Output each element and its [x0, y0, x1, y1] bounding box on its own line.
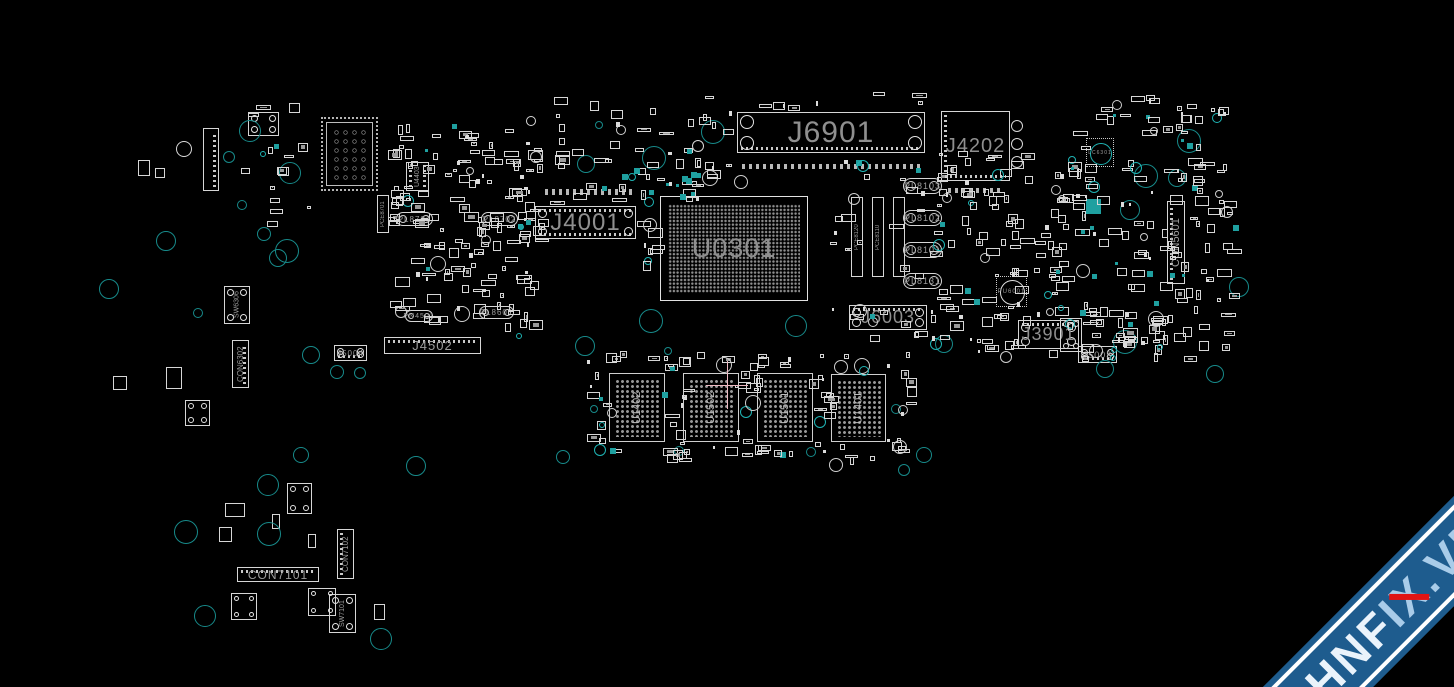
smd-part — [610, 141, 620, 149]
smd-part — [1085, 195, 1087, 198]
smd-part — [1217, 298, 1221, 302]
smd-part — [405, 149, 412, 159]
smd-part — [917, 209, 925, 212]
smd-part — [400, 136, 414, 141]
smd-part — [823, 450, 826, 453]
smd-part — [1131, 96, 1145, 102]
smd-part — [1015, 286, 1029, 294]
smd-part — [602, 186, 607, 191]
smd-part — [1085, 164, 1097, 173]
smd-part — [1217, 269, 1232, 277]
smd-part — [590, 101, 599, 111]
component-sw6306[interactable]: SW6306 — [224, 286, 250, 324]
smd-part — [1186, 288, 1193, 298]
smd-part — [982, 297, 997, 303]
smd-part — [948, 240, 955, 248]
smd-part — [681, 403, 683, 408]
smd-part — [680, 442, 685, 445]
smd-part — [1092, 333, 1101, 338]
smd-part — [512, 189, 527, 196]
smd-part — [416, 272, 420, 277]
smd-part — [1052, 292, 1058, 295]
smd-part — [702, 170, 718, 186]
smd-part — [1082, 344, 1094, 353]
smd-part — [470, 150, 480, 154]
smd-part — [1196, 290, 1201, 300]
component-lc6301[interactable]: LC6301 — [1086, 138, 1114, 167]
component-pce8120[interactable]: PCE8120 — [851, 197, 863, 277]
component-chip — [203, 128, 219, 191]
component-label: U1402 — [610, 374, 664, 441]
smd-part — [615, 449, 622, 453]
smd-part — [965, 158, 971, 166]
smd-part — [586, 183, 597, 190]
mount-hole — [692, 140, 704, 152]
smd-part — [1036, 253, 1046, 258]
via-hole — [354, 367, 366, 379]
component-j4502[interactable]: J4502 — [384, 337, 481, 354]
smd-part — [1147, 221, 1154, 229]
smd-part — [1149, 325, 1160, 334]
smd-part — [848, 193, 860, 205]
smd-part — [940, 222, 945, 227]
smd-part — [688, 119, 694, 127]
smd-part — [970, 202, 977, 210]
smd-part — [1187, 104, 1197, 109]
smd-part — [789, 451, 793, 457]
smd-part — [643, 261, 651, 271]
smd-part — [520, 231, 531, 237]
smd-part — [939, 153, 943, 156]
smd-part — [505, 196, 514, 199]
smd-part — [471, 142, 477, 146]
smd-part — [932, 336, 935, 341]
smd-part — [950, 285, 963, 294]
via-hole — [898, 464, 910, 476]
smd-part — [900, 178, 906, 181]
smd-part — [464, 212, 479, 222]
smd-part — [497, 302, 501, 310]
smd-part — [1109, 310, 1124, 317]
smd-part — [1017, 302, 1020, 307]
smd-part — [901, 321, 911, 328]
smd-part — [1001, 239, 1006, 246]
smd-part — [906, 402, 917, 405]
smd-part — [742, 453, 753, 457]
smd-part — [962, 216, 969, 226]
smd-part — [832, 308, 834, 311]
smd-part — [1199, 324, 1210, 330]
smd-part — [505, 257, 518, 262]
smd-part — [870, 456, 875, 461]
component-pl8102[interactable]: PL8102 — [903, 210, 942, 226]
via-hole — [595, 121, 603, 129]
smd-part — [1020, 238, 1035, 244]
smd-part — [1071, 167, 1074, 170]
smd-part — [918, 101, 923, 105]
smd-part — [1062, 276, 1075, 282]
smd-part — [970, 338, 972, 341]
smd-part — [1113, 114, 1116, 117]
smd-part — [683, 389, 695, 392]
smd-part — [307, 206, 311, 209]
smd-part — [426, 277, 428, 281]
component-chip — [374, 604, 385, 620]
smd-part — [513, 159, 521, 167]
smd-part — [703, 114, 707, 121]
component-chip — [155, 168, 165, 178]
smd-part — [1068, 322, 1073, 330]
smd-part — [758, 354, 767, 359]
smd-part — [476, 179, 480, 184]
component-u1402[interactable]: U1402 — [609, 373, 665, 442]
smd-part — [820, 354, 824, 358]
smd-part — [993, 192, 1005, 197]
smd-part — [399, 145, 404, 149]
smd-part — [840, 444, 845, 450]
smd-part — [986, 158, 995, 161]
smd-part — [1061, 174, 1064, 179]
smd-part — [479, 222, 490, 230]
component-u1502[interactable]: U1502 — [683, 373, 739, 442]
smd-part — [1118, 338, 1120, 342]
smd-part — [857, 160, 869, 172]
smd-part — [1149, 257, 1151, 260]
smd-part — [298, 143, 308, 152]
smd-part — [1076, 264, 1090, 278]
smd-part — [809, 379, 819, 389]
via-hole — [293, 447, 309, 463]
smd-part — [1207, 279, 1209, 282]
smd-part — [916, 168, 921, 173]
smd-part — [525, 271, 528, 274]
smd-part — [864, 174, 870, 180]
smd-part — [1187, 143, 1193, 149]
smd-part — [635, 148, 644, 152]
smd-part — [474, 249, 484, 255]
via-hole — [237, 200, 247, 210]
smd-part — [1138, 250, 1147, 255]
smd-part — [453, 169, 457, 172]
smd-part — [491, 218, 499, 228]
smd-part — [485, 157, 495, 165]
smd-part — [528, 190, 530, 194]
component-chip — [166, 367, 182, 389]
smd-part — [391, 202, 399, 209]
smd-part — [1082, 211, 1086, 221]
smd-part — [1084, 302, 1088, 310]
smd-part — [1048, 241, 1054, 250]
smd-part — [974, 299, 980, 305]
smd-part — [756, 378, 763, 387]
smd-part — [270, 209, 283, 214]
smd-part — [1012, 231, 1019, 240]
component-u0301[interactable]: U0301 — [660, 196, 808, 301]
smd-part — [452, 124, 457, 129]
via-hole — [785, 315, 807, 337]
smd-part — [429, 214, 439, 221]
smd-part — [432, 134, 441, 138]
smd-part — [835, 216, 843, 222]
smd-part — [824, 412, 836, 419]
smd-part — [612, 198, 627, 202]
smd-part — [1181, 131, 1188, 134]
smd-part — [518, 212, 527, 220]
smd-part — [1154, 301, 1159, 306]
component-chip — [287, 483, 312, 514]
smd-part — [940, 304, 954, 310]
smd-part — [616, 122, 620, 127]
smd-part — [1207, 224, 1215, 233]
smd-part — [520, 319, 527, 328]
smd-part — [284, 155, 294, 158]
smd-part — [526, 169, 534, 172]
smd-part — [423, 165, 435, 174]
component-label: PCE8110 — [873, 198, 883, 276]
smd-part — [987, 345, 995, 350]
smd-part — [1049, 350, 1058, 358]
smd-part — [595, 372, 599, 380]
smd-part — [1037, 312, 1040, 317]
component-chip — [113, 376, 127, 390]
smd-part — [463, 268, 471, 277]
via-hole — [330, 365, 344, 379]
smd-part — [1176, 124, 1183, 131]
smd-part — [664, 356, 668, 361]
smd-part — [500, 293, 504, 298]
smd-part — [1051, 209, 1059, 218]
smd-part — [505, 323, 511, 332]
smd-part — [1112, 100, 1122, 110]
smd-part — [1150, 127, 1158, 135]
component-chip — [225, 503, 245, 517]
smd-part — [466, 167, 474, 175]
smd-part — [1015, 219, 1024, 229]
mount-hole — [526, 116, 536, 126]
component-pce8110[interactable]: PCE8110 — [872, 197, 884, 277]
component-con7101[interactable]: CON7101 — [237, 567, 319, 582]
smd-part — [982, 317, 993, 327]
smd-part — [1107, 116, 1114, 125]
smd-part — [1046, 308, 1054, 316]
smd-part — [469, 180, 476, 188]
via-hole — [556, 450, 570, 464]
via-hole — [806, 447, 816, 457]
smd-part — [686, 197, 693, 202]
smd-part — [1034, 268, 1040, 273]
smd-part — [788, 105, 800, 111]
smd-part — [1178, 178, 1183, 182]
component-pce8701[interactable]: PCE8701 — [377, 195, 389, 233]
smd-part — [670, 422, 677, 427]
smd-part — [445, 173, 452, 177]
smd-part — [1059, 261, 1069, 267]
via-hole — [257, 474, 279, 496]
smd-part — [757, 451, 769, 454]
smd-part — [662, 392, 668, 398]
smd-part — [1045, 225, 1049, 230]
smd-part — [1090, 226, 1094, 230]
boardview-canvas[interactable]: J6901J4202J4001U0301J4502J6003J3901J5003… — [0, 0, 1454, 687]
smd-part — [559, 156, 570, 165]
smd-part — [474, 304, 486, 314]
smd-part — [444, 273, 453, 281]
via-hole — [194, 605, 216, 627]
smd-part — [1224, 331, 1235, 336]
smd-part — [758, 445, 771, 451]
smd-part — [457, 306, 460, 311]
smd-part — [992, 169, 1004, 181]
smd-part — [628, 173, 636, 181]
via-hole — [577, 155, 595, 173]
smd-part — [880, 310, 888, 315]
smd-part — [396, 219, 400, 224]
component-j6901[interactable]: J6901 — [737, 112, 925, 153]
smd-part — [649, 190, 654, 195]
smd-part — [976, 239, 983, 246]
smd-part — [643, 218, 657, 232]
smd-part — [404, 186, 413, 189]
smd-part — [611, 110, 623, 119]
smd-part — [1196, 221, 1200, 227]
smd-part — [938, 173, 948, 181]
smd-part — [834, 231, 837, 235]
smd-part — [1128, 284, 1135, 290]
smd-part — [1000, 313, 1009, 321]
component-dotrow — [742, 164, 924, 169]
component-label: U1501 — [758, 374, 812, 441]
component-u1501[interactable]: U1501 — [757, 373, 813, 442]
via-hole — [257, 227, 271, 241]
smd-part — [466, 135, 469, 139]
smd-part — [461, 243, 470, 249]
smd-part — [818, 375, 823, 380]
smd-part — [682, 395, 687, 399]
smd-part — [668, 152, 672, 155]
smd-part — [637, 128, 651, 132]
smd-part — [418, 191, 429, 197]
smd-part — [1000, 351, 1012, 363]
smd-part — [471, 263, 476, 268]
smd-part — [644, 243, 646, 248]
smd-part — [1124, 337, 1138, 343]
smd-part — [1148, 117, 1160, 123]
smd-part — [489, 142, 493, 149]
component-con6302[interactable]: CON6302 — [232, 340, 249, 388]
smd-part — [679, 357, 691, 367]
component-chip — [308, 588, 336, 616]
smd-part — [1205, 243, 1210, 253]
smd-part — [1195, 116, 1203, 124]
smd-part — [666, 183, 669, 186]
smd-part — [1157, 344, 1163, 350]
smd-part — [260, 151, 266, 157]
via-hole — [156, 231, 176, 251]
selection-crosshair — [706, 385, 748, 386]
smd-part — [906, 187, 918, 194]
smd-part — [518, 224, 524, 230]
smd-part — [1147, 271, 1153, 277]
smd-part — [1181, 139, 1184, 142]
smd-part — [1128, 322, 1133, 327]
via-hole — [99, 279, 119, 299]
component-con7102[interactable]: CON7102 — [337, 529, 354, 579]
smd-part — [1006, 221, 1013, 227]
smd-part — [459, 204, 470, 213]
smd-part — [1140, 233, 1148, 241]
smd-part — [1092, 274, 1097, 279]
smd-part — [853, 304, 867, 318]
smd-part — [516, 333, 522, 339]
smd-part — [1051, 185, 1061, 195]
smd-part — [1010, 245, 1021, 249]
component-u1401[interactable]: U1401 — [831, 374, 886, 442]
smd-part — [607, 408, 617, 418]
smd-part — [940, 335, 950, 340]
component-j4001[interactable]: J4001 — [535, 206, 636, 239]
smd-part — [1111, 347, 1117, 353]
smd-part — [411, 161, 418, 166]
smd-part — [535, 239, 549, 242]
smd-part — [829, 458, 843, 472]
watermark-ribbon: HNFIX.VN — [1151, 360, 1454, 687]
mount-hole — [1011, 138, 1023, 150]
smd-part — [646, 174, 650, 180]
smd-part — [1120, 114, 1131, 117]
smd-part — [587, 360, 590, 364]
smd-part — [967, 228, 971, 235]
smd-part — [859, 366, 869, 376]
smd-part — [1101, 107, 1113, 112]
smd-part — [1055, 172, 1061, 179]
component-label: U0301 — [661, 197, 807, 300]
smd-part — [556, 114, 560, 118]
smd-part — [1076, 194, 1080, 198]
smd-part — [494, 159, 503, 165]
smd-part — [411, 258, 425, 264]
smd-part — [1117, 268, 1127, 276]
smd-part — [937, 204, 942, 207]
smd-part — [726, 164, 732, 167]
smd-part — [1023, 316, 1031, 326]
smd-part — [241, 168, 250, 174]
smd-part — [1201, 269, 1207, 274]
smd-part — [759, 104, 772, 108]
smd-part — [482, 290, 490, 297]
component-chip — [185, 400, 210, 426]
smd-part — [1097, 196, 1110, 205]
via-hole — [916, 447, 932, 463]
smd-part — [395, 306, 410, 311]
smd-part — [1110, 355, 1116, 361]
smd-part — [754, 388, 759, 391]
smd-part — [502, 266, 506, 271]
smd-part — [1233, 225, 1239, 231]
smd-part — [440, 228, 444, 232]
smd-part — [657, 178, 665, 181]
smd-part — [1082, 356, 1089, 362]
component-j5004[interactable]: J5004 — [334, 345, 367, 361]
smd-part — [1153, 340, 1160, 343]
smd-part — [873, 92, 885, 96]
smd-part — [1008, 306, 1014, 309]
smd-part — [1080, 310, 1086, 316]
smd-part — [433, 153, 438, 160]
smd-part — [1058, 215, 1066, 223]
smd-part — [844, 354, 849, 359]
smd-part — [1199, 341, 1209, 351]
smd-part — [1194, 306, 1198, 314]
